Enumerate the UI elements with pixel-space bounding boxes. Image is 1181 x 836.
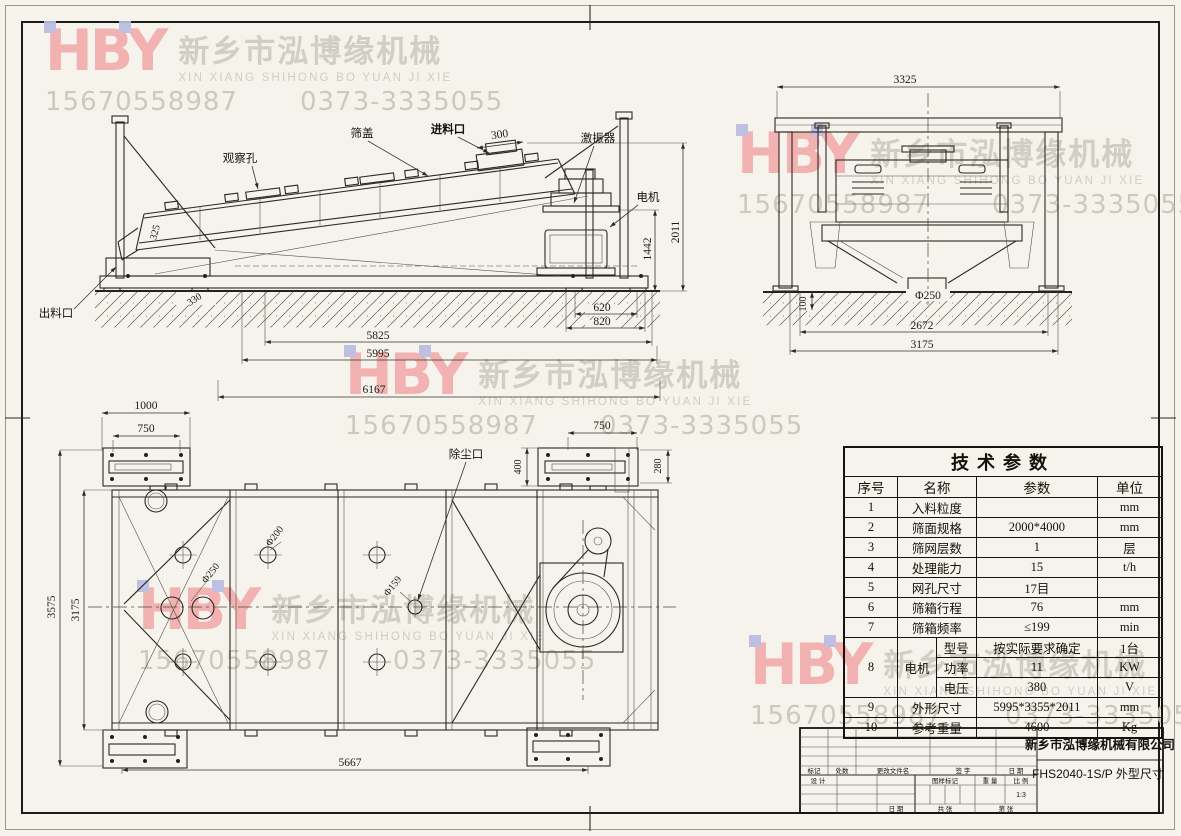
table-row: 7筛箱频率≤199min xyxy=(844,617,1162,637)
cell-sub-label: 功率 xyxy=(936,657,976,677)
dim-height-total: 2011 xyxy=(670,220,682,243)
cell-no: 2 xyxy=(844,517,898,537)
end-view: 3325 100 Φ250 2672 3175 xyxy=(763,74,1072,355)
dim-left-note: 325 xyxy=(148,224,163,241)
dim-dust-flange-h2: 280 xyxy=(653,459,664,474)
dim-motor-base-1: 620 xyxy=(593,302,611,314)
side-view: 观察孔 筛盖 进料口 300 激振器 电机 出料口 325 330 620 82… xyxy=(39,112,687,401)
feed-inlet-label: 进料口 xyxy=(431,122,466,136)
dim-width-inner: 3175 xyxy=(70,598,82,621)
cell-param xyxy=(976,497,1097,517)
dim-ground-depth: 100 xyxy=(798,297,809,312)
cell-param: 11 xyxy=(976,657,1097,677)
company-name: 新乡市泓博缘机械有限公司 xyxy=(1025,737,1175,752)
table-row: 4处理能力15t/h xyxy=(844,557,1162,577)
table-row: 2筛面规格2000*4000mm xyxy=(844,517,1162,537)
cell-name: 外形尺寸 xyxy=(898,697,977,717)
tb-label-scale: 比 例 xyxy=(1014,776,1029,785)
cell-param: ≤199 xyxy=(976,617,1097,637)
dim-length: 5667 xyxy=(339,757,362,769)
cell-param: 2000*4000 xyxy=(976,517,1097,537)
dim-width-outer: 3575 xyxy=(46,595,58,618)
dim-hole-3: Φ159 xyxy=(382,574,404,598)
tb-label-date2: 日 期 xyxy=(889,805,904,813)
dim-feed-opening: 300 xyxy=(490,128,509,142)
cell-param: 15 xyxy=(976,557,1097,577)
cell-name: 筛箱行程 xyxy=(898,597,977,617)
dim-dust-flange-w: 750 xyxy=(593,420,611,432)
cell-no: 5 xyxy=(844,577,898,597)
cell-name: 入料粒度 xyxy=(898,497,977,517)
dim-span-3: 6167 xyxy=(363,384,386,396)
cell-unit: KW xyxy=(1098,657,1162,677)
cell-name: 网孔尺寸 xyxy=(898,577,977,597)
cell-sub-label: 型号 xyxy=(936,637,976,657)
cell-motor-name: 电机 xyxy=(898,637,937,697)
col-header-unit: 单位 xyxy=(1098,476,1162,497)
cell-unit: 层 xyxy=(1098,537,1162,557)
cell-unit: t/h xyxy=(1098,557,1162,577)
tb-scale-value: 1:3 xyxy=(1016,792,1026,799)
cell-unit: min xyxy=(1098,617,1162,637)
col-header-no: 序号 xyxy=(844,476,898,497)
dim-width-inner: 2672 xyxy=(911,320,934,332)
tb-label-sheet-no: 第 张 xyxy=(999,804,1014,813)
title-block: 新乡市泓博缘机械有限公司 FHS2040-1S/P 外型尺寸 标记 处数 更改文… xyxy=(800,728,1175,813)
cell-no: 3 xyxy=(844,537,898,557)
drawing-sheet: { "watermark": { "logo": "HBY", "company… xyxy=(0,0,1181,836)
cell-name: 筛面规格 xyxy=(898,517,977,537)
cell-param: 380 xyxy=(976,677,1097,697)
tb-label-count: 处数 xyxy=(836,766,850,775)
cell-param: 76 xyxy=(976,597,1097,617)
discharge-outlet-label: 出料口 xyxy=(39,306,74,320)
tb-label-date: 日 期 xyxy=(1009,767,1024,775)
table-row: 6筛箱行程76mm xyxy=(844,597,1162,617)
table-row-motor: 8 电机 型号 按实际要求确定 1台 xyxy=(844,637,1162,657)
cell-param: 4600 xyxy=(976,717,1097,738)
observation-hole-label: 观察孔 xyxy=(223,151,258,165)
cell-no: 4 xyxy=(844,557,898,577)
cell-unit: 1台 xyxy=(1098,637,1162,657)
dim-span-2: 5995 xyxy=(367,348,390,360)
cell-name: 参考重量 xyxy=(898,717,977,738)
tb-label-weight: 重 量 xyxy=(983,777,998,785)
table-row: 1入料粒度mm xyxy=(844,497,1162,517)
drawing-number: FHS2040-1S/P 外型尺寸 xyxy=(1032,767,1164,781)
tech-params-table: 技术参数 序号 名称 参数 单位 1入料粒度mm 2筛面规格2000*4000m… xyxy=(843,446,1163,739)
cell-param: 17目 xyxy=(976,577,1097,597)
cell-unit: mm xyxy=(1098,517,1162,537)
tb-label-sign: 签 字 xyxy=(956,766,971,775)
dim-width-outer: 3175 xyxy=(911,339,934,351)
dim-height-exciter: 1442 xyxy=(642,237,654,260)
table-title: 技术参数 xyxy=(844,447,1162,476)
cell-unit: mm xyxy=(1098,597,1162,617)
dust-port-label: 除尘口 xyxy=(449,447,484,461)
cell-param: 按实际要求确定 xyxy=(976,637,1097,657)
dim-dust-flange-h1: 400 xyxy=(513,460,524,475)
tb-label-file: 更改文件名 xyxy=(877,766,910,775)
cell-unit: mm xyxy=(1098,497,1162,517)
cell-name: 筛网层数 xyxy=(898,537,977,557)
tb-label-pattern-mark: 图样标记 xyxy=(932,776,959,785)
cell-no: 9 xyxy=(844,697,898,717)
cell-name: 筛箱频率 xyxy=(898,617,977,637)
table-row: 3筛网层数1层 xyxy=(844,537,1162,557)
cell-sub-label: 电压 xyxy=(936,677,976,697)
cell-name: 处理能力 xyxy=(898,557,977,577)
table-row: 10参考重量4600Kg xyxy=(844,717,1162,738)
cell-unit: mm xyxy=(1098,697,1162,717)
tb-label-design: 设 计 xyxy=(811,776,826,785)
cell-unit: V xyxy=(1098,677,1162,697)
col-header-param: 参数 xyxy=(976,476,1097,497)
cell-param: 1 xyxy=(976,537,1097,557)
tb-label-total-sheets: 共 张 xyxy=(938,804,953,813)
dim-width-top: 3325 xyxy=(894,74,917,86)
dim-hole-2: Φ200 xyxy=(264,524,286,548)
cell-no: 6 xyxy=(844,597,898,617)
tb-label-mark: 标记 xyxy=(808,766,822,775)
screen-cover-label: 筛盖 xyxy=(351,126,374,140)
motor-label: 电机 xyxy=(637,190,660,204)
dim-span-1: 5825 xyxy=(367,330,390,342)
dim-hole-1: Φ250 xyxy=(200,561,222,585)
cell-param: 5995*3355*2011 xyxy=(976,697,1097,717)
dim-chute-dia: Φ250 xyxy=(915,290,941,302)
cell-unit xyxy=(1098,577,1162,597)
cell-unit: Kg xyxy=(1098,717,1162,738)
dim-flange-bolt-w: 750 xyxy=(137,423,155,435)
cell-no: 8 xyxy=(844,637,898,697)
dim-motor-base-2: 820 xyxy=(593,316,611,328)
dim-flange-w: 1000 xyxy=(135,400,158,412)
cell-no: 10 xyxy=(844,717,898,738)
col-header-name: 名称 xyxy=(898,476,977,497)
plan-view: 除尘口 Φ250 Φ200 Φ159 1000 750 750 400 280 … xyxy=(46,400,676,774)
table-row: 5网孔尺寸17目 xyxy=(844,577,1162,597)
cell-no: 7 xyxy=(844,617,898,637)
table-row: 9外形尺寸5995*3355*2011mm xyxy=(844,697,1162,717)
cell-no: 1 xyxy=(844,497,898,517)
